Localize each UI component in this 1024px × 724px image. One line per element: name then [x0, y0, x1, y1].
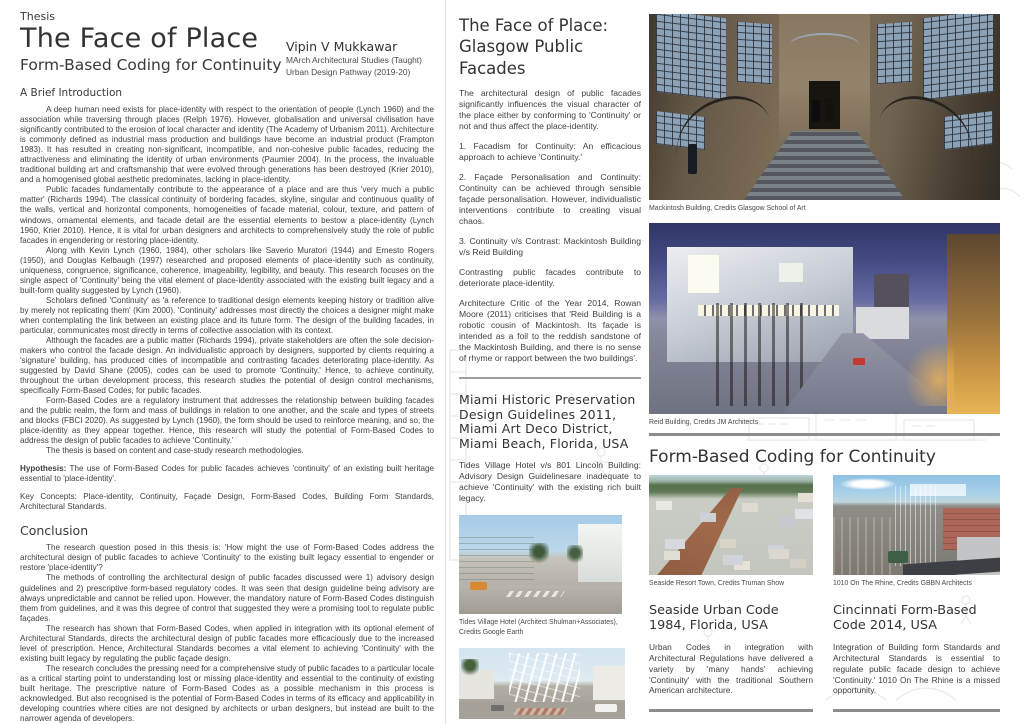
hypothesis-text: The use of Form-Based Codes for public f… — [20, 464, 434, 483]
tides-caption: Tides Village Hotel (Architect Shulman+A… — [459, 618, 641, 637]
hypothesis: Hypothesis: The use of Form-Based Codes … — [20, 464, 434, 484]
seaside-case-study: Seaside Resort Town, Credits Truman Show… — [649, 475, 813, 712]
cincinnati-heading: Cincinnati Form-Based Code 2014, USA — [833, 603, 1000, 634]
photo-detail — [649, 475, 813, 575]
mackintosh-caption: Mackintosh Building, Credits Glasgow Sch… — [649, 204, 1014, 214]
rhine-tower-photo — [833, 475, 1000, 575]
glasgow-heading-line2: Glasgow Public Facades — [459, 37, 583, 77]
lincoln-figure: 801 Lincoln Building (Architect Shulman+… — [459, 648, 641, 724]
conclusion-paragraph: The research concludes the pressing need… — [20, 664, 434, 724]
photo-detail — [789, 33, 859, 59]
glasgow-list-item: 1. Facadism for Continuity: An efficacio… — [459, 141, 641, 163]
miami-paragraph: Tides Village Hotel v/s 801 Lincoln Buil… — [459, 460, 641, 504]
seaside-caption: Seaside Resort Town, Credits Truman Show — [649, 579, 813, 589]
seaside-figure: Seaside Resort Town, Credits Truman Show — [649, 475, 813, 589]
photo-detail — [578, 524, 622, 581]
section-divider — [649, 433, 1000, 436]
author-block: Vipin V Mukkawar MArch Architectural Stu… — [286, 39, 436, 78]
photo-detail — [812, 100, 820, 122]
photo-detail — [905, 341, 954, 406]
photo-detail — [716, 303, 811, 406]
photo-detail — [874, 274, 909, 306]
mackintosh-building-photo — [649, 14, 1000, 200]
intro-paragraph: Along with Kevin Lynch (1960, 1984), oth… — [20, 246, 434, 296]
glasgow-paragraph: The architectural design of public facad… — [459, 88, 641, 132]
seaside-heading: Seaside Urban Code 1984, Florida, USA — [649, 603, 813, 634]
reid-figure: Reid Building, Credits JM Architects — [649, 223, 1014, 428]
intro-heading: A Brief Introduction — [20, 87, 434, 99]
intro-paragraph: A deep human need exists for place-ident… — [20, 105, 434, 185]
photo-detail — [529, 543, 549, 565]
glasgow-paragraph: Contrasting public facades contribute to… — [459, 267, 641, 289]
tides-figure: Tides Village Hotel (Architect Shulman+A… — [459, 515, 641, 637]
photo-detail — [840, 478, 897, 490]
reid-building-photo — [649, 223, 1000, 414]
photo-detail — [779, 263, 804, 282]
left-page: Thesis The Face of Place Form-Based Codi… — [0, 0, 445, 724]
section-divider — [459, 377, 641, 379]
hypothesis-label: Hypothesis: — [20, 464, 66, 473]
intro-paragraph: Scholars defined 'Continuity' as 'a refe… — [20, 296, 434, 336]
photo-detail — [665, 539, 685, 549]
right-text-column: The Face of Place:Glasgow Public Facades… — [459, 0, 641, 724]
fbc-case-studies: Seaside Resort Town, Credits Truman Show… — [649, 475, 1014, 712]
glasgow-heading-line1: The Face of Place: — [459, 16, 608, 35]
seaside-paragraph: Urban Codes in integration with Architec… — [649, 642, 813, 697]
tides-village-hotel-photo — [459, 515, 622, 614]
photo-detail — [459, 536, 534, 580]
glasgow-list-item: 2. Façade Personalisation and Continuity… — [459, 172, 641, 227]
glasgow-list-item: 3. Continuity v/s Contrast: Mackintosh B… — [459, 236, 641, 258]
photo-detail — [688, 255, 720, 293]
photo-detail — [947, 234, 1000, 414]
kicker: Thesis — [20, 10, 434, 23]
conclusion-paragraph: The research has shown that Form-Based C… — [20, 624, 434, 664]
right-page: The Face of Place:Glasgow Public Facades… — [446, 0, 1024, 724]
photo-detail — [853, 358, 865, 365]
photo-detail — [593, 666, 625, 700]
author-degree: MArch Architectural Studies (Taught) — [286, 55, 436, 66]
photo-detail — [506, 591, 566, 597]
reid-caption: Reid Building, Credits JM Architects — [649, 418, 1014, 428]
thesis-poster: Thesis The Face of Place Form-Based Codi… — [0, 0, 1024, 724]
cincinnati-caption: 1010 On The Rhine, Credits GBBN Architec… — [833, 579, 1000, 589]
author-name: Vipin V Mukkawar — [286, 39, 436, 54]
photo-detail — [509, 653, 580, 703]
photo-detail — [877, 22, 912, 84]
mackintosh-figure: Mackintosh Building, Credits Glasgow Sch… — [649, 14, 1014, 214]
intro-paragraph: Form-Based Codes are a regulatory instru… — [20, 396, 434, 446]
intro-paragraph: Public facades fundamentally contribute … — [20, 185, 434, 245]
conclusion-paragraph: The methods of controlling the architect… — [20, 573, 434, 623]
photo-detail — [871, 90, 981, 184]
photo-detail — [688, 144, 697, 174]
cincinnati-paragraph: Integration of Building form Standards a… — [833, 642, 1000, 697]
glasgow-paragraph: Architecture Critic of the Year 2014, Ro… — [459, 298, 641, 364]
photo-detail — [888, 551, 908, 563]
author-pathway: Urban Design Pathway (2019-20) — [286, 67, 436, 78]
section-divider — [833, 709, 1000, 712]
photo-detail — [595, 704, 617, 712]
fbc-heading: Form-Based Coding for Continuity — [649, 447, 1014, 467]
photo-detail — [567, 545, 583, 565]
photo-detail — [491, 705, 504, 711]
right-image-column: Mackintosh Building, Credits Glasgow Sch… — [649, 0, 1014, 712]
glasgow-heading: The Face of Place:Glasgow Public Facades — [459, 15, 641, 79]
seaside-resort-photo — [649, 475, 813, 575]
photo-detail — [656, 501, 672, 510]
lincoln-building-photo — [459, 648, 625, 719]
conclusion-paragraph: The research question posed in this thes… — [20, 543, 434, 573]
section-divider — [649, 709, 813, 712]
intro-body: A deep human need exists for place-ident… — [20, 105, 434, 724]
intro-paragraph: Although the facades are a public matter… — [20, 336, 434, 396]
cincinnati-figure: 1010 On The Rhine, Credits GBBN Architec… — [833, 475, 1000, 589]
page-fold-divider — [445, 0, 446, 724]
photo-detail — [470, 582, 486, 590]
photo-detail — [833, 517, 895, 575]
miami-heading: Miami Historic Preservation Design Guide… — [459, 393, 641, 451]
key-concepts: Key Concepts: Place-identity, Continuity… — [20, 492, 434, 512]
conclusion-heading: Conclusion — [20, 523, 434, 538]
photo-detail — [737, 22, 772, 84]
photo-detail — [513, 708, 567, 715]
photo-detail — [461, 659, 479, 677]
photo-detail — [825, 98, 833, 122]
cincinnati-case-study: 1010 On The Rhine, Credits GBBN Architec… — [833, 475, 1000, 712]
intro-paragraph: The thesis is based on content and case-… — [20, 446, 434, 456]
photo-detail — [656, 14, 726, 100]
photo-detail — [923, 14, 993, 100]
photo-detail — [668, 90, 778, 184]
